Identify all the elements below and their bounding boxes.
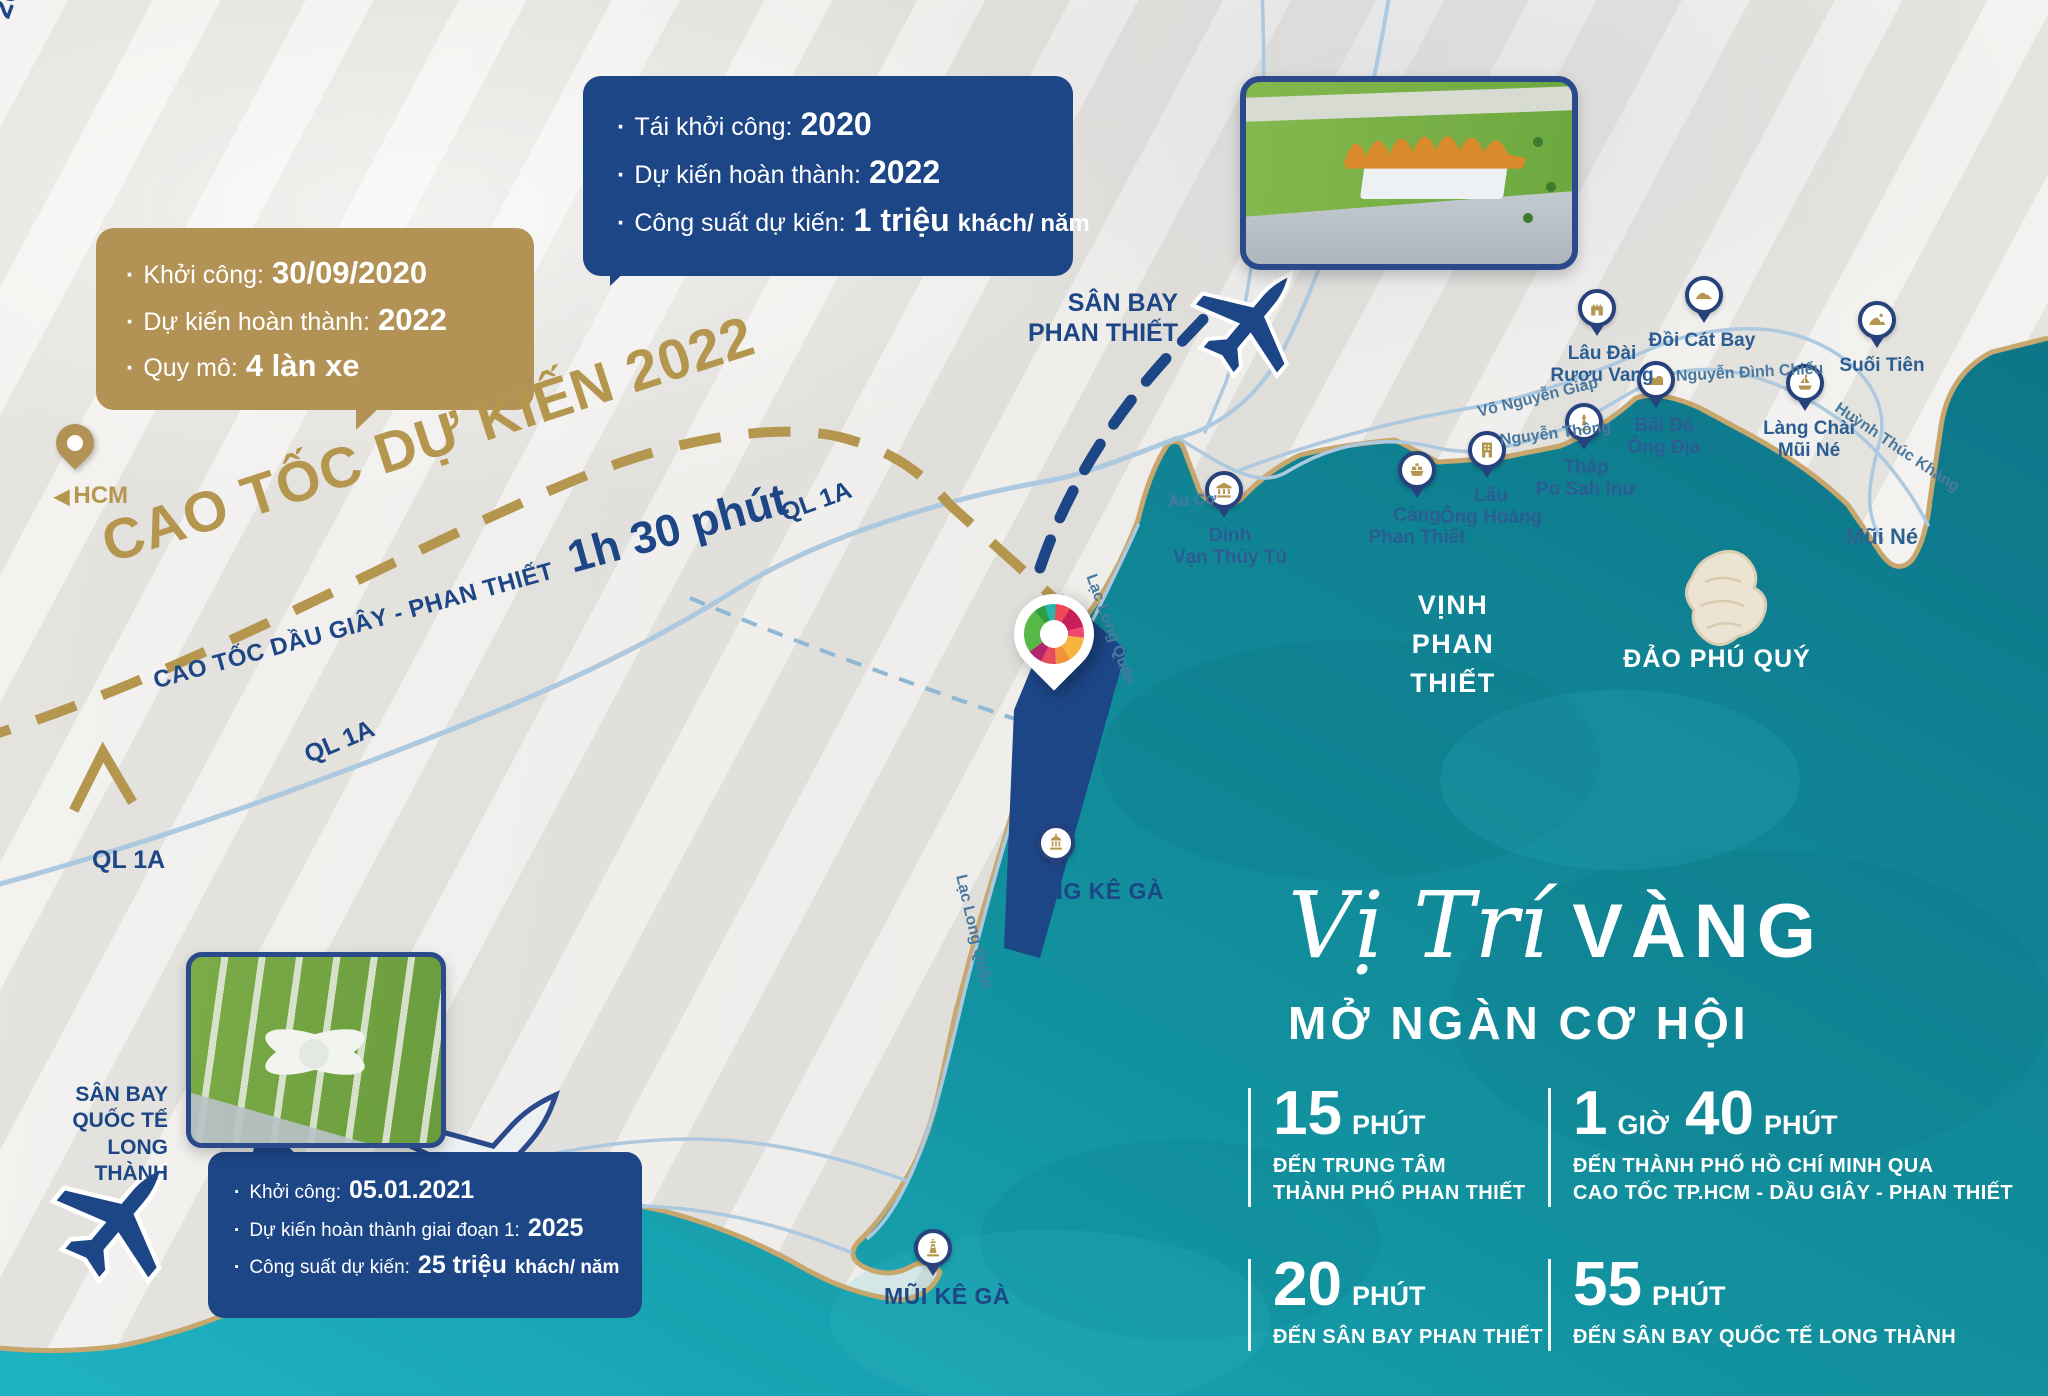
poi-pointer bbox=[1649, 397, 1663, 415]
project-logo bbox=[1024, 604, 1084, 664]
terminal-hub bbox=[299, 1039, 329, 1069]
stat-description: ĐẾN SÂN BAY QUỐC TẾ LONG THÀNH bbox=[1573, 1324, 2048, 1351]
long-thanh-airport-photo bbox=[186, 952, 446, 1148]
stat-3: 55PHÚTĐẾN SÂN BAY QUỐC TẾ LONG THÀNH bbox=[1548, 1259, 2048, 1351]
headline: Vị Trí VÀNG bbox=[1288, 872, 1824, 979]
stats-grid: 15PHÚTĐẾN TRUNG TÂM THÀNH PHỐ PHAN THIẾT… bbox=[1248, 1088, 2048, 1351]
poi-label: CẢNG KÊ GÀ bbox=[973, 878, 1203, 904]
headline-script: Vị Trí bbox=[1288, 872, 1548, 979]
info-value: 05.01.2021 bbox=[349, 1172, 474, 1210]
long-thanh-airport-label: SÂN BAY QUỐC TẾ LONG THÀNH bbox=[50, 1082, 168, 1187]
info-value: 2022 bbox=[378, 297, 447, 344]
info-row: Quy mô: 4 làn xe bbox=[126, 343, 534, 390]
info-suffix: khách/ năm bbox=[515, 1254, 620, 1283]
poi-cang-ke-ga: CẢNG KÊ GÀ bbox=[941, 824, 1171, 904]
info-row: Dự kiến hoàn thành: 2022 bbox=[126, 297, 534, 344]
infographic-map: Khởi công: 30/09/2020 Dự kiến hoàn thành… bbox=[0, 0, 2048, 1396]
info-row: Khởi công: 30/09/2020 bbox=[126, 250, 534, 297]
tree bbox=[1533, 137, 1543, 147]
info-label: Dự kiến hoàn thành: bbox=[634, 157, 861, 195]
pt-airport-info-box: Tái khởi công: 2020 Dự kiến hoàn thành: … bbox=[583, 76, 1073, 276]
ql1a-label: QL 1A bbox=[92, 846, 165, 875]
dune-icon bbox=[1694, 285, 1714, 305]
lighthouse-icon bbox=[923, 1238, 943, 1258]
hcm-label: ◀ HCM bbox=[54, 482, 128, 510]
stat-description: ĐẾN SÂN BAY PHAN THIẾT bbox=[1273, 1324, 1548, 1351]
spring-icon bbox=[1867, 310, 1887, 330]
stat-2: 20PHÚTĐẾN SÂN BAY PHAN THIẾT bbox=[1248, 1259, 1548, 1351]
poi-pointer bbox=[926, 1265, 940, 1283]
headline-subtitle: MỞ NGÀN CƠ HỘI bbox=[1288, 996, 1750, 1050]
poi-label: Tháp Po Sah Inư bbox=[1471, 457, 1701, 501]
expressway-info-box: Khởi công: 30/09/2020 Dự kiến hoàn thành… bbox=[96, 228, 534, 410]
info-label: Dự kiến hoàn thành: bbox=[143, 304, 370, 342]
phan-thiet-bay-label: VỊNH PHAN THIẾT bbox=[1368, 586, 1538, 703]
stat-value-line: 20PHÚT bbox=[1273, 1259, 1548, 1312]
poi-label: MŨI KÊ GÀ bbox=[832, 1283, 1062, 1309]
info-value: 30/09/2020 bbox=[272, 250, 427, 297]
stat-value-line: 55PHÚT bbox=[1573, 1259, 2048, 1312]
info-row: Công suất dự kiến: 25 triệu khách/ năm bbox=[234, 1247, 642, 1285]
stat-unit1: PHÚT bbox=[1652, 1281, 1726, 1312]
info-value: 2020 bbox=[800, 100, 871, 148]
info-label: Quy mô: bbox=[143, 350, 237, 388]
info-row: Dự kiến hoàn thành giai đoạn 1: 2025 bbox=[234, 1210, 642, 1248]
pt-box-tail bbox=[610, 248, 650, 286]
info-label: Tái khởi công: bbox=[634, 109, 792, 147]
info-row: Khởi công: 05.01.2021 bbox=[234, 1172, 642, 1210]
info-label: Dự kiến hoàn thành giai đoạn 1: bbox=[249, 1217, 519, 1246]
poi-circle bbox=[1858, 301, 1896, 339]
expressway-arrow bbox=[76, 752, 130, 806]
runway-strip bbox=[1240, 86, 1578, 122]
stat-unit1: GIỜ bbox=[1617, 1110, 1669, 1141]
left-arrow-icon: ◀ bbox=[54, 484, 69, 509]
info-row: Tái khởi công: 2020 bbox=[617, 100, 1073, 148]
info-value: 2025 bbox=[528, 1210, 584, 1248]
apron bbox=[1246, 191, 1572, 264]
poi-mui-ke-ga: MŨI KÊ GÀ bbox=[818, 1229, 1048, 1309]
stat-num1: 55 bbox=[1573, 1259, 1642, 1312]
poi-pointer bbox=[1798, 400, 1812, 418]
phan-thiet-airport-photo bbox=[1240, 76, 1578, 270]
stat-unit1: PHÚT bbox=[1352, 1281, 1426, 1312]
phu-quy-island-label: ĐẢO PHÚ QUÝ bbox=[1622, 645, 1812, 674]
info-value: 4 làn xe bbox=[246, 343, 360, 390]
stat-num1: 15 bbox=[1273, 1088, 1342, 1141]
stat-1: 1GIỜ40PHÚTĐẾN THÀNH PHỐ HỒ CHÍ MINH QUA … bbox=[1548, 1088, 2048, 1207]
stat-num2: 40 bbox=[1685, 1088, 1754, 1141]
road-name-label: Âu Cơ bbox=[1167, 491, 1217, 512]
info-row: Dự kiến hoàn thành: 2022 bbox=[617, 148, 1073, 196]
hcm-text: HCM bbox=[73, 482, 128, 510]
planned-road-dashed bbox=[690, 598, 1048, 730]
poi-circle bbox=[914, 1229, 952, 1267]
poi-circle bbox=[1037, 824, 1075, 862]
tree bbox=[1546, 182, 1556, 192]
headline-accent: VÀNG bbox=[1572, 889, 1824, 974]
lt-airport-info-box: Khởi công: 05.01.2021 Dự kiến hoàn thành… bbox=[208, 1152, 642, 1318]
stat-num1: 1 bbox=[1573, 1088, 1607, 1141]
wavy-roof bbox=[1344, 118, 1527, 173]
poi-pointer bbox=[1217, 507, 1231, 525]
info-label: Khởi công: bbox=[143, 257, 264, 295]
poi-pointer bbox=[1870, 337, 1884, 355]
phan-thiet-airport-label: SÂN BAY PHAN THIẾT bbox=[1028, 288, 1178, 348]
stat-description: ĐẾN TRUNG TÂM THÀNH PHỐ PHAN THIẾT bbox=[1273, 1153, 1548, 1207]
stat-value-line: 1GIỜ40PHÚT bbox=[1573, 1088, 2048, 1141]
temple-icon bbox=[1214, 480, 1234, 500]
poi-pointer bbox=[1697, 312, 1711, 330]
info-value: 2022 bbox=[869, 148, 940, 196]
stat-value-line: 15PHÚT bbox=[1273, 1088, 1548, 1141]
stat-unit2: PHÚT bbox=[1764, 1110, 1838, 1141]
stat-num1: 20 bbox=[1273, 1259, 1342, 1312]
info-value: 25 triệu bbox=[418, 1247, 507, 1285]
info-label: Công suất dự kiến: bbox=[634, 205, 845, 243]
info-label: Công suất dự kiến: bbox=[249, 1254, 410, 1283]
poi-circle bbox=[1685, 276, 1723, 314]
stat-0: 15PHÚTĐẾN TRUNG TÂM THÀNH PHỐ PHAN THIẾT bbox=[1248, 1088, 1548, 1207]
port-icon bbox=[1046, 833, 1066, 853]
info-value: 1 triệu bbox=[854, 196, 950, 244]
info-row: Công suất dự kiến: 1 triệu khách/ năm bbox=[617, 196, 1073, 244]
stat-description: ĐẾN THÀNH PHỐ HỒ CHÍ MINH QUA CAO TỐC TP… bbox=[1573, 1153, 2048, 1207]
info-label: Khởi công: bbox=[249, 1179, 341, 1208]
mui-ne-label: Mũi Né bbox=[1846, 524, 1918, 550]
info-suffix: khách/ năm bbox=[958, 206, 1090, 242]
poi-pointer bbox=[1049, 860, 1063, 878]
stat-unit1: PHÚT bbox=[1352, 1110, 1426, 1141]
